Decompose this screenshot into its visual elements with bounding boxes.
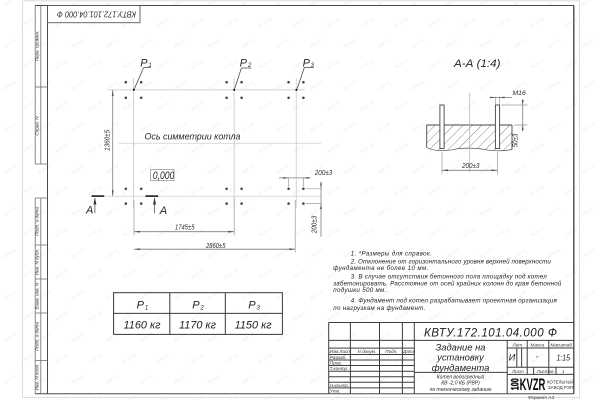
svg-text:kvzr.ru: kvzr.ru [88,142,103,155]
svg-text:kvzr.ru: kvzr.ru [377,205,392,218]
svg-text:kvzr.ru: kvzr.ru [292,310,307,323]
svg-text:kvzr.ru: kvzr.ru [411,163,426,176]
svg-text:kvzr.ru: kvzr.ru [258,142,273,155]
svg-text:kvzr.ru: kvzr.ru [513,163,528,176]
svg-text:kvzr.ru: kvzr.ru [581,163,596,176]
svg-text:kvzr.ru: kvzr.ru [54,58,69,71]
svg-text:kvzr.ru: kvzr.ru [241,37,256,50]
svg-text:kvzr.ru: kvzr.ru [360,16,375,29]
svg-text:Масштаб: Масштаб [551,342,573,347]
svg-text:kvzr.ru: kvzr.ru [513,205,528,218]
svg-text:kvzr.ru: kvzr.ru [309,247,324,260]
svg-text:kvzr.ru: kvzr.ru [122,268,137,281]
svg-text:kvzr.ru: kvzr.ru [54,394,69,400]
svg-text:kvzr.ru: kvzr.ru [224,100,239,113]
svg-text:Утв.: Утв. [330,388,340,393]
svg-text:kvzr.ru: kvzr.ru [428,58,443,71]
svg-text:3. В случае отсутствия бетонн: 3. В случае отсутствия бетонного пола пл… [351,273,548,280]
svg-text:Ось симметрии котла: Ось симметрии котла [145,131,241,141]
svg-text:kvzr.ru: kvzr.ru [258,16,273,29]
svg-text:kvzr.ru: kvzr.ru [105,247,120,260]
svg-text:kvzr.ru: kvzr.ru [88,100,103,113]
svg-text:P: P [240,58,248,70]
svg-text:kvzr.ru: kvzr.ru [564,268,579,281]
svg-text:kvzr.ru: kvzr.ru [156,16,171,29]
svg-text:kvzr.ru: kvzr.ru [411,205,426,218]
svg-text:kvzr.ru: kvzr.ru [479,37,494,50]
svg-text:200±3: 200±3 [314,168,332,177]
svg-text:kvzr.ru: kvzr.ru [156,394,171,400]
svg-text:kvzr.ru: kvzr.ru [547,37,562,50]
svg-text:kvzr.ru: kvzr.ru [173,37,188,50]
svg-text:kvzr.ru: kvzr.ru [258,352,273,365]
svg-text:kvzr.ru: kvzr.ru [275,121,290,134]
svg-text:kvzr.ru: kvzr.ru [156,184,171,197]
svg-text:kvzr.ru: kvzr.ru [479,205,494,218]
svg-text:И: И [509,352,516,363]
svg-text:Справ. N: Справ. N [34,116,39,136]
svg-text:kvzr.ru: kvzr.ru [54,352,69,365]
svg-text:по нагрузкам на фундамент.: по нагрузкам на фундамент. [333,305,425,312]
svg-text:kvzr.ru: kvzr.ru [530,58,545,71]
svg-text:kvzr.ru: kvzr.ru [88,394,103,400]
svg-text:200±3: 200±3 [310,216,319,234]
svg-text:kvzr.ru: kvzr.ru [547,79,562,92]
svg-text:kvzr.ru: kvzr.ru [3,163,18,176]
svg-text:kvzr.ru: kvzr.ru [292,394,307,400]
svg-text:Инв. N подл.: Инв. N подл. [34,364,39,391]
svg-text:Лит.: Лит. [512,342,524,347]
svg-text:Т.контр.: Т.контр. [330,366,349,371]
svg-text:kvzr.ru: kvzr.ru [564,310,579,323]
svg-text:kvzr.ru: kvzr.ru [309,79,324,92]
svg-text:Взам. инв. N: Взам. инв. N [34,282,39,309]
svg-text:kvzr.ru: kvzr.ru [377,79,392,92]
svg-text:kvzr.ru: kvzr.ru [309,37,324,50]
svg-text:kvzr.ru: kvzr.ru [394,58,409,71]
svg-text:kvzr.ru: kvzr.ru [275,205,290,218]
svg-text:kvzr.ru: kvzr.ru [326,184,341,197]
svg-text:kvzr.ru: kvzr.ru [360,58,375,71]
svg-text:kvzr.ru: kvzr.ru [360,142,375,155]
svg-text:kvzr.ru: kvzr.ru [71,79,86,92]
svg-text:kvzr.ru: kvzr.ru [581,79,596,92]
svg-text:kvzr.ru: kvzr.ru [530,16,545,29]
svg-text:kvzr.ru: kvzr.ru [394,16,409,29]
svg-text:1: 1 [562,369,565,374]
svg-text:kvzr.ru: kvzr.ru [105,37,120,50]
svg-text:kvzr.ru: kvzr.ru [190,268,205,281]
svg-text:kvzr.ru: kvzr.ru [88,184,103,197]
svg-text:kvzr.ru: kvzr.ru [581,373,596,386]
svg-text:kvzr.ru: kvzr.ru [326,100,341,113]
svg-text:kvzr.ru: kvzr.ru [190,100,205,113]
svg-text:kvzr.ru: kvzr.ru [581,0,596,8]
svg-text:kvzr.ru: kvzr.ru [462,16,477,29]
svg-text:Масса: Масса [531,342,545,347]
svg-text:kvzr.ru: kvzr.ru [428,226,443,239]
svg-text:kvzr.ru: kvzr.ru [479,79,494,92]
svg-text:kvzr.ru: kvzr.ru [71,331,86,344]
svg-text:kvzr.ru: kvzr.ru [105,205,120,218]
svg-text:kvzr.ru: kvzr.ru [241,373,256,386]
svg-text:kvzr.ru: kvzr.ru [173,331,188,344]
svg-text:kvzr.ru: kvzr.ru [71,373,86,386]
svg-text:kvzr.ru: kvzr.ru [54,142,69,155]
svg-text:kvzr.ru: kvzr.ru [275,163,290,176]
svg-text:kvzr.ru: kvzr.ru [224,58,239,71]
svg-text:kvzr.ru: kvzr.ru [3,79,18,92]
svg-text:kvzr.ru: kvzr.ru [530,100,545,113]
svg-text:kvzr.ru: kvzr.ru [241,121,256,134]
svg-text:0,000: 0,000 [153,170,175,182]
svg-text:КВТУ.172.101.04.000 Ф: КВТУ.172.101.04.000 Ф [57,10,136,19]
svg-text:Подп. и дата: Подп. и дата [34,207,39,236]
svg-text:kvzr.ru: kvzr.ru [224,184,239,197]
svg-text:kvzr.ru: kvzr.ru [122,184,137,197]
svg-text:kvzr.ru: kvzr.ru [428,310,443,323]
svg-text:kvzr.ru: kvzr.ru [394,394,409,400]
svg-text:kvzr.ru: kvzr.ru [496,16,511,29]
svg-text:kvzr.ru: kvzr.ru [156,58,171,71]
svg-text:kvzr.ru: kvzr.ru [258,100,273,113]
svg-text:kvzr.ru: kvzr.ru [190,184,205,197]
svg-text:kvzr.ru: kvzr.ru [343,205,358,218]
svg-text:kvzr.ru: kvzr.ru [292,352,307,365]
svg-text:фундамента не более 10 мм.: фундамента не более 10 мм. [333,265,428,272]
svg-text:kvzr.ru: kvzr.ru [343,79,358,92]
svg-text:kvzr.ru: kvzr.ru [292,16,307,29]
svg-text:Котел водогрейный: Котел водогрейный [437,373,485,380]
svg-text:P: P [137,299,145,311]
svg-text:kvzr.ru: kvzr.ru [3,289,18,302]
svg-text:2: 2 [247,63,252,69]
svg-text:kvzr.ru: kvzr.ru [54,226,69,239]
svg-text:kvzr.ru: kvzr.ru [530,142,545,155]
svg-text:kvzr.ru: kvzr.ru [292,268,307,281]
svg-text:kvzr.ru: kvzr.ru [258,58,273,71]
svg-text:kvzr.ru: kvzr.ru [394,184,409,197]
svg-text:kvzr.ru: kvzr.ru [139,247,154,260]
svg-text:kvzr.ru: kvzr.ru [241,331,256,344]
svg-text:подушки 500 мм.: подушки 500 мм. [333,287,386,294]
svg-text:1:15: 1:15 [557,353,571,362]
svg-text:kvzr.ru: kvzr.ru [292,142,307,155]
svg-text:kvzr.ru: kvzr.ru [564,226,579,239]
svg-text:по техническому заданию: по техническому заданию [430,387,492,393]
svg-text:kvzr.ru: kvzr.ru [156,268,171,281]
svg-text:kvzr.ru: kvzr.ru [122,58,137,71]
svg-text:Пров.: Пров. [330,360,342,365]
svg-text:Н.контр.: Н.контр. [330,383,349,388]
svg-text:kvzr.ru: kvzr.ru [190,16,205,29]
svg-text:kvzr.ru: kvzr.ru [377,163,392,176]
svg-text:kvzr.ru: kvzr.ru [530,226,545,239]
svg-text:kvzr.ru: kvzr.ru [207,163,222,176]
svg-text:фундамента: фундамента [432,362,490,373]
svg-text:kvzr.ru: kvzr.ru [513,37,528,50]
svg-text:Формат А3: Формат А3 [528,395,555,400]
svg-text:kvzr.ru: kvzr.ru [292,184,307,197]
svg-text:N докум.: N докум. [358,349,377,354]
svg-text:1160 кг: 1160 кг [124,320,162,332]
svg-text:kvzr.ru: kvzr.ru [258,394,273,400]
svg-text:kvzr.ru: kvzr.ru [360,184,375,197]
svg-text:kvzr.ru: kvzr.ru [173,247,188,260]
svg-text:kvzr.ru: kvzr.ru [326,142,341,155]
svg-text:kvzr.ru: kvzr.ru [411,373,426,386]
svg-text:kvzr.ru: kvzr.ru [54,268,69,281]
svg-text:kvzr.ru: kvzr.ru [309,121,324,134]
svg-text:kvzr.ru: kvzr.ru [377,121,392,134]
svg-text:kvzr.ru: kvzr.ru [3,373,18,386]
svg-text:kvzr.ru: kvzr.ru [224,142,239,155]
svg-text:kvzr.ru: kvzr.ru [88,58,103,71]
svg-text:kvzr.ru: kvzr.ru [530,184,545,197]
svg-text:kvzr.ru: kvzr.ru [173,163,188,176]
svg-text:kvzr.ru: kvzr.ru [190,142,205,155]
svg-text:kvzr.ru: kvzr.ru [54,310,69,323]
svg-text:kvzr.ru: kvzr.ru [37,163,52,176]
svg-text:kvzr.ru: kvzr.ru [496,394,511,400]
svg-text:kvzr.ru: kvzr.ru [394,226,409,239]
svg-text:КОТЕЛЬНЫЙ: КОТЕЛЬНЫЙ [547,379,575,384]
svg-text:kvzr.ru: kvzr.ru [326,58,341,71]
svg-text:kvzr.ru: kvzr.ru [377,37,392,50]
svg-text:kvzr.ru: kvzr.ru [428,184,443,197]
svg-text:kvzr.ru: kvzr.ru [394,142,409,155]
svg-text:kvzr.ru: kvzr.ru [445,205,460,218]
svg-text:kvzr.ru: kvzr.ru [326,16,341,29]
svg-text:kvzr.ru: kvzr.ru [88,268,103,281]
svg-text:kvzr.ru: kvzr.ru [581,37,596,50]
svg-text:-: - [536,352,539,361]
svg-text:Дата: Дата [402,349,416,354]
svg-text:Лист: Лист [511,369,524,374]
svg-text:kvzr.ru: kvzr.ru [139,331,154,344]
svg-text:А-А (1:4): А-А (1:4) [453,58,501,70]
svg-text:kvzr.ru: kvzr.ru [462,226,477,239]
svg-text:kvzr.ru: kvzr.ru [224,394,239,400]
svg-text:kvzr.ru: kvzr.ru [462,394,477,400]
svg-text:Перв. примен.: Перв. примен. [34,31,39,62]
svg-text:kvzr.ru: kvzr.ru [411,121,426,134]
svg-text:kvzr.ru: kvzr.ru [258,268,273,281]
svg-text:kvzr.ru: kvzr.ru [462,310,477,323]
svg-text:kvzr.ru: kvzr.ru [190,58,205,71]
svg-text:kvzr.ru: kvzr.ru [122,352,137,365]
svg-text:kvzr.ru: kvzr.ru [564,142,579,155]
svg-text:50±3: 50±3 [511,134,520,148]
svg-text:kvzr.ru: kvzr.ru [88,352,103,365]
svg-text:Разраб.: Разраб. [330,355,347,360]
svg-text:kvzr.ru: kvzr.ru [496,184,511,197]
svg-text:kvzr.ru: kvzr.ru [360,226,375,239]
svg-text:Изм.Лист: Изм.Лист [330,349,352,354]
svg-text:kvzr.ru: kvzr.ru [394,100,409,113]
svg-text:P: P [192,299,200,311]
svg-text:kvzr.ru: kvzr.ru [445,79,460,92]
svg-text:1150 кг: 1150 кг [235,320,273,332]
svg-text:kvzr.ru: kvzr.ru [326,226,341,239]
svg-text:kvzr.ru: kvzr.ru [122,226,137,239]
svg-text:kvzr.ru: kvzr.ru [37,79,52,92]
svg-text:kvzr.ru: kvzr.ru [207,331,222,344]
svg-text:kvzr.ru: kvzr.ru [360,394,375,400]
svg-text:А: А [85,205,93,217]
svg-text:kvzr.ru: kvzr.ru [258,226,273,239]
svg-text:kvzr.ru: kvzr.ru [3,121,18,134]
svg-text:kvzr.ru: kvzr.ru [411,79,426,92]
svg-text:kvzr.ru: kvzr.ru [309,205,324,218]
svg-text:kvzr.ru: kvzr.ru [496,226,511,239]
svg-text:КВТУ.172.101.04.000 Ф: КВТУ.172.101.04.000 Ф [424,328,557,340]
svg-text:kvzr.ru: kvzr.ru [581,121,596,134]
svg-text:kvzr.ru: kvzr.ru [292,100,307,113]
svg-text:установку: установку [436,352,485,363]
svg-text:kvzr.ru: kvzr.ru [207,373,222,386]
svg-text:kvzr.ru: kvzr.ru [224,352,239,365]
svg-text:kvzr.ru: kvzr.ru [173,205,188,218]
svg-text:kvzr.ru: kvzr.ru [71,205,86,218]
svg-text:kvzr.ru: kvzr.ru [564,394,579,400]
svg-text:kvzr.ru: kvzr.ru [122,100,137,113]
svg-text:ЗАВОД РЭП: ЗАВОД РЭП [548,385,573,390]
svg-text:kvzr.ru: kvzr.ru [445,37,460,50]
svg-text:kvzr.ru: kvzr.ru [547,205,562,218]
svg-text:2860±5: 2860±5 [205,241,226,250]
svg-text:200±3: 200±3 [461,161,479,170]
svg-text:1360±5: 1360±5 [102,129,111,151]
svg-text:kvzr.ru: kvzr.ru [343,37,358,50]
svg-text:kvzr.ru: kvzr.ru [156,100,171,113]
svg-text:kvzr.ru: kvzr.ru [343,121,358,134]
svg-text:kvzr.ru: kvzr.ru [173,373,188,386]
svg-text:Инв. N дубл.: Инв. N дубл. [34,249,39,276]
svg-text:kvzr.ru: kvzr.ru [309,331,324,344]
svg-text:kvzr.ru: kvzr.ru [207,205,222,218]
svg-text:kvzr.ru: kvzr.ru [54,100,69,113]
svg-text:kvzr.ru: kvzr.ru [581,205,596,218]
svg-text:kvzr.ru: kvzr.ru [360,100,375,113]
svg-text:kvzr.ru: kvzr.ru [71,163,86,176]
svg-text:1: 1 [148,63,151,69]
svg-text:kvzr.ru: kvzr.ru [71,37,86,50]
svg-text:kvzr.ru: kvzr.ru [564,184,579,197]
svg-text:kvzr.ru: kvzr.ru [224,268,239,281]
svg-text:kvzr.ru: kvzr.ru [428,16,443,29]
svg-text:kvzr.ru: kvzr.ru [564,58,579,71]
svg-text:kvzr.ru: kvzr.ru [581,247,596,260]
svg-text:kvzr.ru: kvzr.ru [241,163,256,176]
svg-text:Подп.: Подп. [385,349,397,354]
svg-text:4. Фундамент под котел разраб: 4. Фундамент под котел разрабатывает про… [351,298,558,305]
svg-text:kvzr.ru: kvzr.ru [122,142,137,155]
svg-text:kvzr.ru: kvzr.ru [105,331,120,344]
svg-text:kvzr.ru: kvzr.ru [3,37,18,50]
svg-text:KVZR: KVZR [520,376,546,394]
svg-text:1170 кг: 1170 кг [179,320,217,332]
svg-text:2: 2 [200,305,205,311]
svg-text:kvzr.ru: kvzr.ru [3,247,18,260]
svg-text:kvzr.ru: kvzr.ru [190,352,205,365]
svg-text:kvzr.ru: kvzr.ru [71,289,86,302]
svg-text:kvzr.ru: kvzr.ru [326,394,341,400]
svg-text:1745±5: 1745±5 [175,223,195,232]
svg-text:kvzr.ru: kvzr.ru [241,205,256,218]
svg-text:М16: М16 [513,90,526,97]
svg-text:kvzr.ru: kvzr.ru [224,16,239,29]
svg-text:kvzr.ru: kvzr.ru [564,16,579,29]
svg-text:kvzr.ru: kvzr.ru [343,163,358,176]
svg-text:Подп. и дата: Подп. и дата [34,322,39,351]
svg-text:kvzr.ru: kvzr.ru [411,37,426,50]
svg-text:kvzr.ru: kvzr.ru [445,163,460,176]
svg-text:kvzr.ru: kvzr.ru [3,0,18,8]
svg-text:kvzr.ru: kvzr.ru [309,373,324,386]
svg-text:3: 3 [257,305,261,311]
svg-text:kvzr.ru: kvzr.ru [105,373,120,386]
svg-text:kvzr.ru: kvzr.ru [156,352,171,365]
svg-text:kvzr.ru: kvzr.ru [547,163,562,176]
svg-text:kvzr.ru: kvzr.ru [275,373,290,386]
svg-text:P: P [140,58,148,70]
svg-text:kvzr.ru: kvzr.ru [207,289,222,302]
svg-text:3: 3 [311,63,315,69]
svg-text:kvzr.ru: kvzr.ru [258,184,273,197]
svg-text:kvzr.ru: kvzr.ru [479,163,494,176]
svg-text:kvzr.ru: kvzr.ru [3,205,18,218]
svg-text:kvzr.ru: kvzr.ru [71,121,86,134]
svg-text:kvzr.ru: kvzr.ru [224,226,239,239]
svg-text:kvzr.ru: kvzr.ru [139,205,154,218]
svg-text:kvzr.ru: kvzr.ru [156,226,171,239]
svg-text:kvzr.ru: kvzr.ru [496,310,511,323]
svg-text:kvzr.ru: kvzr.ru [564,100,579,113]
svg-text:kvzr.ru: kvzr.ru [105,289,120,302]
svg-text:kvzr.ru: kvzr.ru [173,289,188,302]
svg-text:kvzr.ru: kvzr.ru [581,289,596,302]
svg-text:kvzr.ru: kvzr.ru [428,394,443,400]
svg-text:1. *Размеры для справок.: 1. *Размеры для справок. [351,250,432,257]
svg-text:P: P [248,299,256,311]
svg-text:kvzr.ru: kvzr.ru [207,37,222,50]
svg-text:kvzr.ru: kvzr.ru [581,331,596,344]
svg-text:kvzr.ru: kvzr.ru [547,121,562,134]
svg-text:kvzr.ru: kvzr.ru [71,247,86,260]
svg-text:kvzr.ru: kvzr.ru [513,121,528,134]
svg-text:kvzr.ru: kvzr.ru [292,226,307,239]
svg-text:kvzr.ru: kvzr.ru [309,289,324,302]
svg-text:kvzr.ru: kvzr.ru [3,331,18,344]
svg-text:kvzr.ru: kvzr.ru [275,37,290,50]
svg-text:kvzr.ru: kvzr.ru [139,373,154,386]
svg-text:kvzr.ru: kvzr.ru [88,310,103,323]
svg-text:1: 1 [145,305,148,311]
svg-text:Листов: Листов [536,369,554,374]
svg-text:kvzr.ru: kvzr.ru [54,184,69,197]
svg-text:kvzr.ru: kvzr.ru [530,310,545,323]
svg-text:kvzr.ru: kvzr.ru [156,142,171,155]
svg-text:КВ -2,0 КБ (РВР): КВ -2,0 КБ (РВР) [441,381,480,387]
svg-text:kvzr.ru: kvzr.ru [139,37,154,50]
svg-text:kvzr.ru: kvzr.ru [122,394,137,400]
svg-text:kvzr.ru: kvzr.ru [462,184,477,197]
svg-text:kvzr.ru: kvzr.ru [275,247,290,260]
svg-text:kvzr.ru: kvzr.ru [190,394,205,400]
svg-text:А: А [159,205,167,217]
svg-text:P: P [303,58,311,70]
